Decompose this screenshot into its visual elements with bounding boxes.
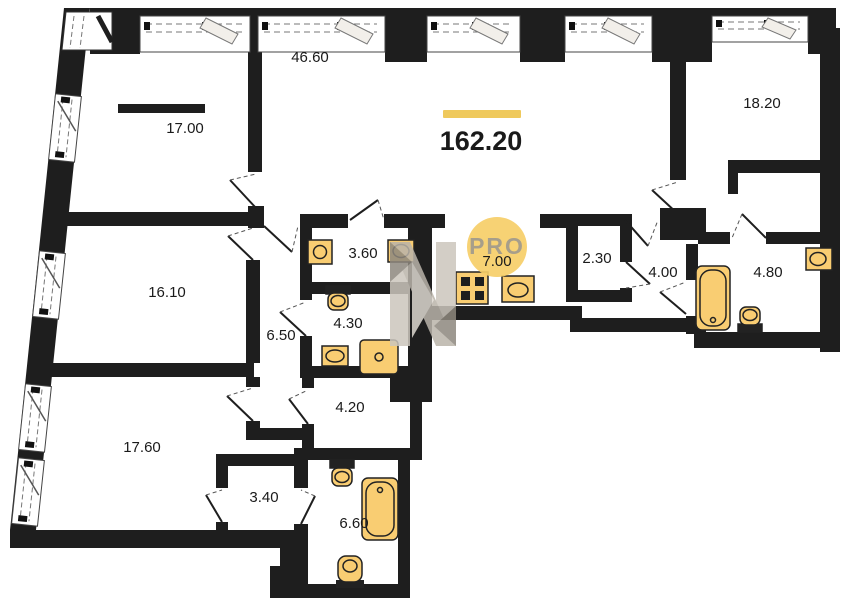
window-icon: [19, 384, 52, 452]
wall: [138, 8, 252, 16]
toilet-icon: [326, 286, 350, 310]
window-icon: [49, 94, 82, 162]
wall: [563, 8, 654, 16]
toilet-icon: [330, 460, 354, 486]
wall: [698, 232, 730, 244]
wall: [410, 402, 422, 460]
wall: [216, 454, 302, 466]
room-label-17-00: 17.00: [166, 120, 204, 137]
door-icon: [264, 226, 298, 252]
floor-plan-canvas: PRO 162.20 46.60 17.00 18.20 16.10 6.50 …: [0, 0, 850, 600]
room-label-17-60: 17.60: [123, 439, 161, 456]
wall: [398, 448, 410, 598]
wall: [40, 363, 254, 377]
wall: [710, 8, 810, 16]
room-label-6-50: 6.50: [266, 327, 295, 344]
window-icon: [565, 16, 652, 52]
wall: [246, 377, 260, 387]
window-icon: [62, 12, 112, 50]
stove-icon: [456, 272, 488, 304]
room-label-6-60: 6.60: [339, 515, 368, 532]
wall: [728, 160, 826, 173]
wall: [302, 366, 314, 388]
room-label-3-40: 3.40: [249, 489, 278, 506]
wall: [314, 448, 410, 460]
wall: [425, 8, 522, 16]
window-icon: [712, 16, 808, 42]
window-icon: [33, 251, 66, 319]
wall: [566, 290, 632, 302]
wall: [216, 522, 228, 538]
bathtub-icon: [696, 266, 730, 330]
door-icon: [230, 174, 256, 208]
room-label-16-10: 16.10: [148, 284, 186, 301]
wall: [44, 212, 254, 226]
total-area-label: 162.20: [440, 126, 523, 156]
floor-plan: PRO 162.20 46.60 17.00 18.20 16.10 6.50 …: [0, 0, 850, 600]
wall: [566, 214, 578, 302]
sink-icon: [322, 346, 348, 366]
wall: [698, 332, 838, 348]
door-icon: [732, 214, 766, 238]
wall: [652, 8, 712, 62]
room-label-3-60: 3.60: [348, 245, 377, 262]
window-icon: [427, 16, 520, 52]
window-icon: [258, 16, 385, 52]
room-label-7-00: 7.00: [482, 253, 511, 270]
wall: [385, 8, 427, 62]
wall: [10, 530, 296, 548]
room-label-4-80: 4.80: [753, 264, 782, 281]
washing-machine-icon: [308, 240, 332, 264]
door-icon: [227, 388, 253, 421]
wall: [620, 226, 632, 262]
room-label-2-30: 2.30: [582, 250, 611, 267]
sink-icon: [806, 248, 832, 270]
pedestal-sink-icon: [336, 556, 364, 588]
door-icon: [301, 490, 315, 524]
wall: [216, 454, 228, 488]
toilet-icon: [738, 307, 762, 332]
door-icon: [206, 490, 222, 522]
wall: [246, 260, 260, 363]
door-icon: [626, 262, 650, 288]
wall: [670, 54, 686, 180]
total-area-accent-bar: [443, 110, 521, 118]
wall: [766, 232, 832, 244]
wall: [728, 160, 738, 194]
door-icon: [289, 390, 308, 424]
room-label-18-20: 18.20: [743, 95, 781, 112]
wall: [256, 8, 387, 16]
wall: [670, 214, 686, 238]
wall: [248, 52, 262, 172]
wall: [520, 8, 565, 62]
door-icon: [660, 282, 686, 314]
sink-icon: [502, 276, 534, 302]
door-icon: [350, 200, 384, 220]
door-icon: [228, 228, 253, 260]
wall: [270, 566, 296, 598]
room-label-4-00: 4.00: [648, 264, 677, 281]
wall: [118, 104, 205, 113]
room-label-4-20: 4.20: [335, 399, 364, 416]
room-label-living: 46.60: [291, 49, 329, 66]
window-icon: [140, 16, 250, 52]
wall: [820, 28, 840, 352]
room-label-4-30: 4.30: [333, 315, 362, 332]
wall: [578, 318, 700, 332]
